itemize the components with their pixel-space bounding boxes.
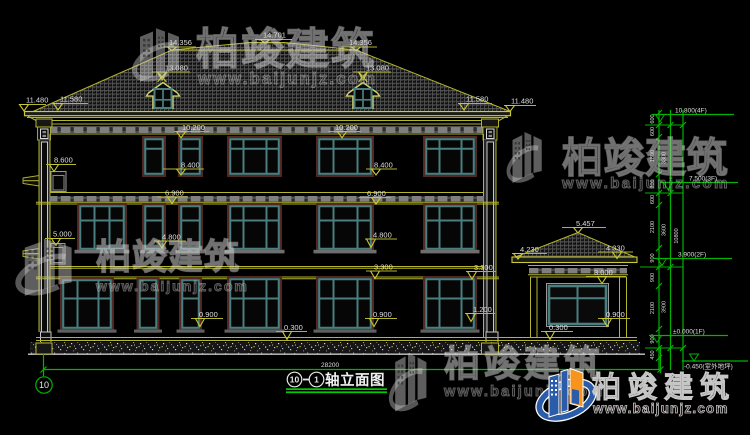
svg-text:4.330: 4.330 (606, 244, 625, 253)
svg-text:1: 1 (314, 375, 319, 385)
svg-text:10: 10 (290, 375, 300, 385)
svg-text:5.000: 5.000 (53, 230, 72, 239)
svg-text:6.900: 6.900 (165, 189, 184, 198)
svg-text:4.230: 4.230 (520, 245, 539, 254)
svg-text:www.baijunjz.com: www.baijunjz.com (561, 175, 730, 192)
svg-text:10.800(4F): 10.800(4F) (675, 108, 707, 115)
svg-text:3900: 3900 (662, 301, 668, 313)
svg-text:900: 900 (650, 273, 656, 282)
svg-text:10: 10 (39, 380, 49, 390)
svg-text:600: 600 (650, 195, 656, 204)
svg-text:11.580: 11.580 (60, 95, 82, 104)
svg-text:11.480: 11.480 (511, 97, 533, 106)
svg-text:0.900: 0.900 (199, 310, 218, 319)
svg-text:6.900: 6.900 (367, 189, 386, 198)
svg-text:3.300: 3.300 (374, 263, 393, 272)
svg-text:8.400: 8.400 (374, 161, 393, 170)
svg-text:0.900: 0.900 (373, 310, 392, 319)
svg-text:10.200: 10.200 (182, 123, 205, 132)
svg-text:柏竣建筑: 柏竣建筑 (592, 370, 736, 404)
svg-text:柏竣建筑: 柏竣建筑 (96, 237, 240, 277)
svg-text:11.480: 11.480 (26, 96, 48, 105)
svg-text:450: 450 (650, 350, 656, 359)
svg-text:柏竣建筑: 柏竣建筑 (196, 26, 376, 74)
svg-text:3.000: 3.000 (594, 268, 613, 277)
svg-text:28200: 28200 (321, 362, 339, 369)
svg-text:0.300: 0.300 (284, 323, 303, 332)
svg-text:600: 600 (650, 114, 656, 123)
svg-text:轴立面图: 轴立面图 (325, 371, 385, 389)
svg-text:3600: 3600 (662, 224, 668, 236)
svg-text:11.580: 11.580 (466, 95, 488, 104)
svg-text:3.900(2F): 3.900(2F) (678, 252, 706, 259)
svg-text:2100: 2100 (650, 221, 656, 233)
svg-text:3.300: 3.300 (474, 263, 493, 272)
svg-text:8.600: 8.600 (54, 156, 73, 165)
svg-text:2100: 2100 (650, 302, 656, 314)
svg-text:10.200: 10.200 (335, 123, 358, 132)
svg-text:10800: 10800 (674, 228, 680, 243)
svg-text:5.457: 5.457 (576, 219, 595, 228)
svg-text:8.400: 8.400 (181, 161, 200, 170)
svg-text:±0.000(1F): ±0.000(1F) (673, 329, 705, 336)
svg-text:www.baijunjz.com: www.baijunjz.com (95, 278, 249, 294)
svg-text:4.800: 4.800 (373, 231, 392, 240)
svg-text:0.900: 0.900 (606, 310, 625, 319)
svg-text:-0.450(室外地坪): -0.450(室外地坪) (684, 362, 733, 371)
svg-text:www.baijunjz.com: www.baijunjz.com (592, 401, 729, 416)
svg-text:1.200: 1.200 (473, 305, 492, 314)
svg-text:www.baijunjz.com: www.baijunjz.com (197, 70, 377, 88)
svg-text:0.300: 0.300 (549, 323, 568, 332)
